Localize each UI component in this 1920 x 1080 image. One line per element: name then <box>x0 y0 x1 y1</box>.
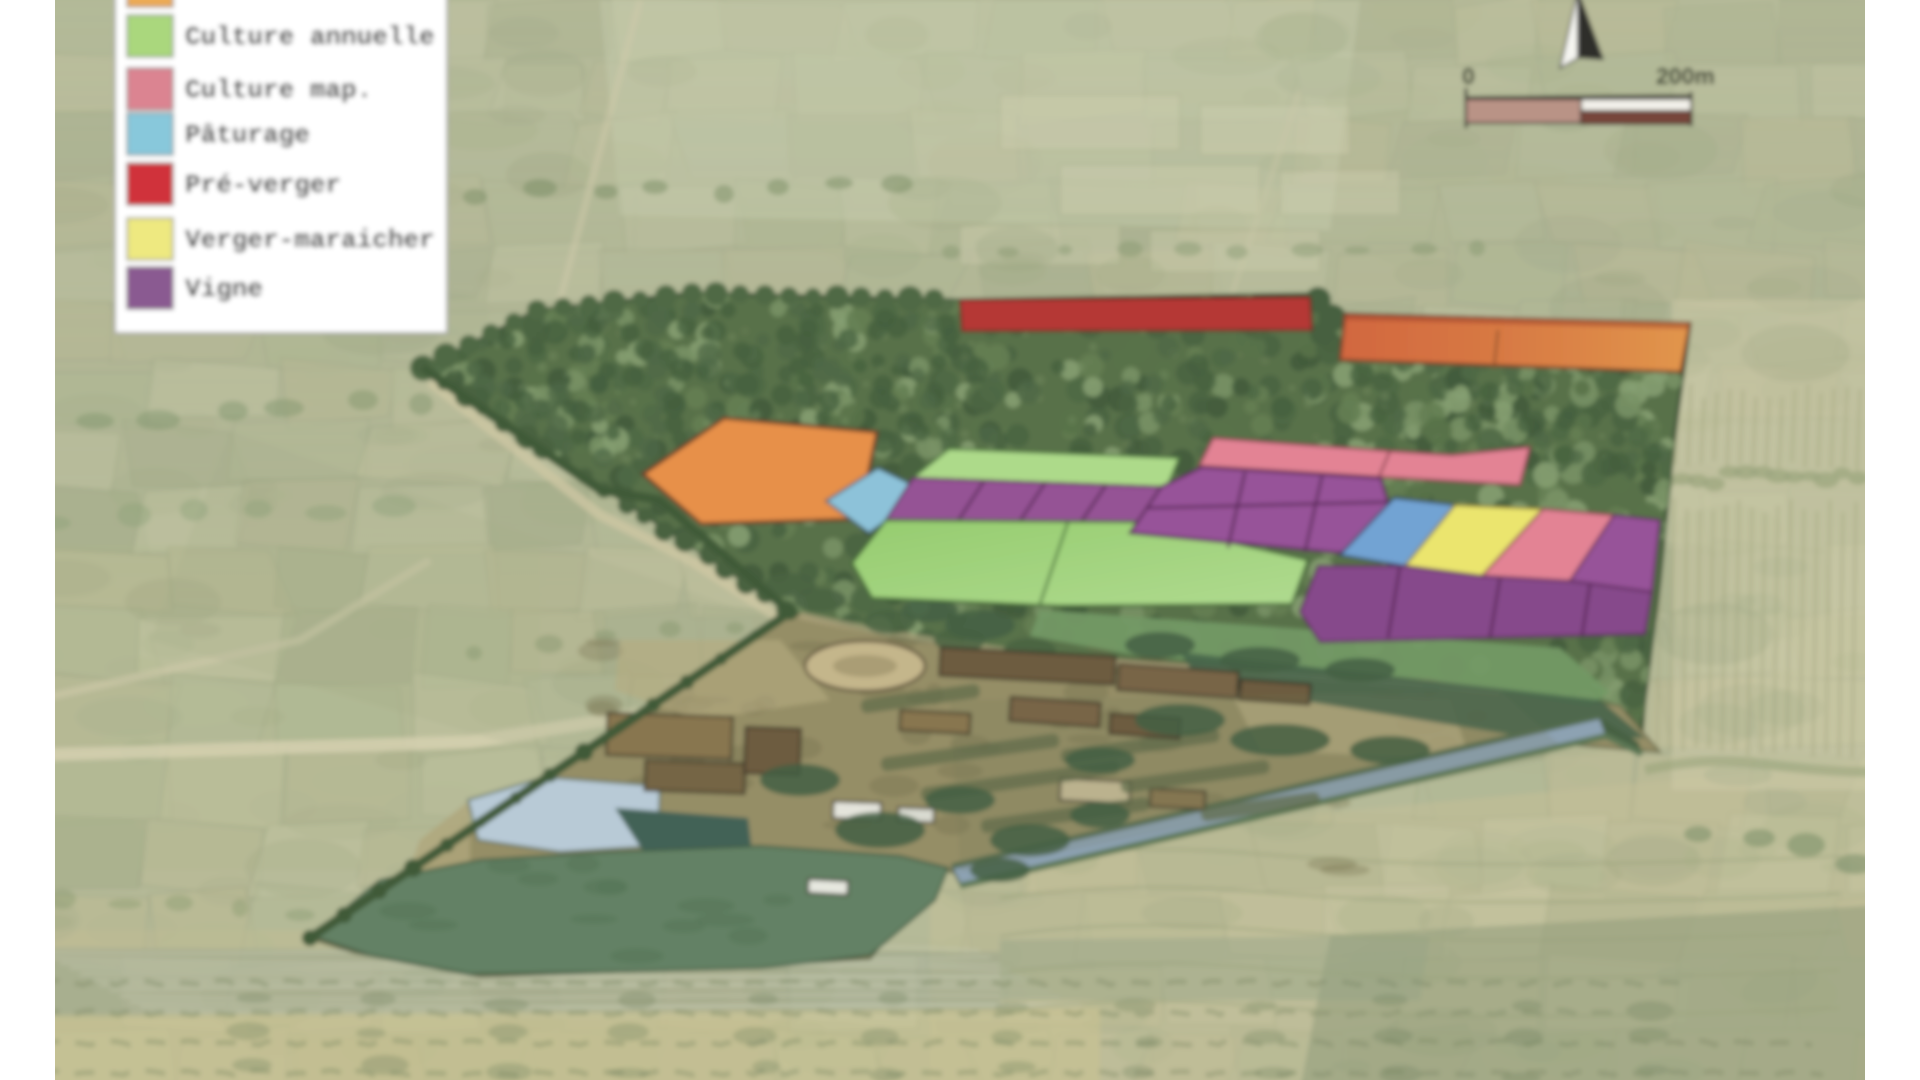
svg-text:Pâturage: Pâturage <box>185 120 310 150</box>
svg-text:Culture annuelle: Culture annuelle <box>185 22 435 52</box>
svg-text:Vigne: Vigne <box>185 274 263 304</box>
svg-text:Pré-verger: Pré-verger <box>185 170 341 200</box>
svg-text:Culture map.: Culture map. <box>185 75 372 105</box>
svg-text:200m: 200m <box>1656 63 1715 89</box>
svg-text:Verger-maraicher: Verger-maraicher <box>185 225 435 255</box>
svg-text:0: 0 <box>1462 63 1475 89</box>
